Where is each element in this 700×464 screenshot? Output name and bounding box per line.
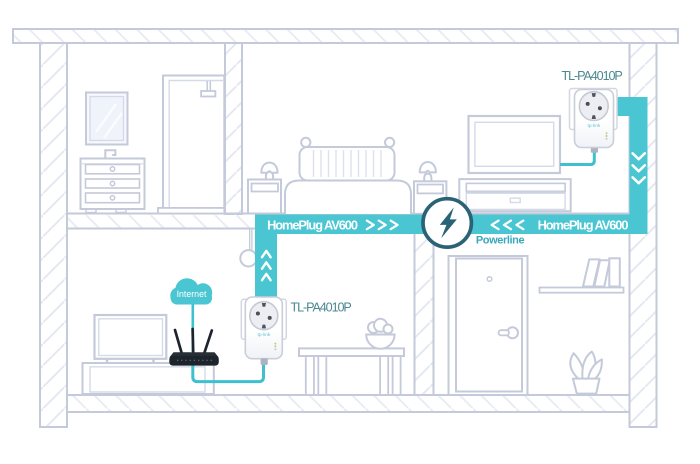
svg-text:TL-PA4010P: TL-PA4010P [291, 300, 352, 314]
svg-text:Powerline: Powerline [476, 235, 525, 247]
svg-text:tp-link: tp-link [258, 332, 271, 338]
svg-text:HomePlug AV600: HomePlug AV600 [538, 217, 629, 232]
svg-text:HomePlug AV600: HomePlug AV600 [267, 217, 358, 232]
svg-text:tp-link: tp-link [588, 123, 601, 129]
svg-text:TL-PA4010P: TL-PA4010P [562, 69, 623, 83]
svg-text:Internet: Internet [177, 289, 207, 299]
